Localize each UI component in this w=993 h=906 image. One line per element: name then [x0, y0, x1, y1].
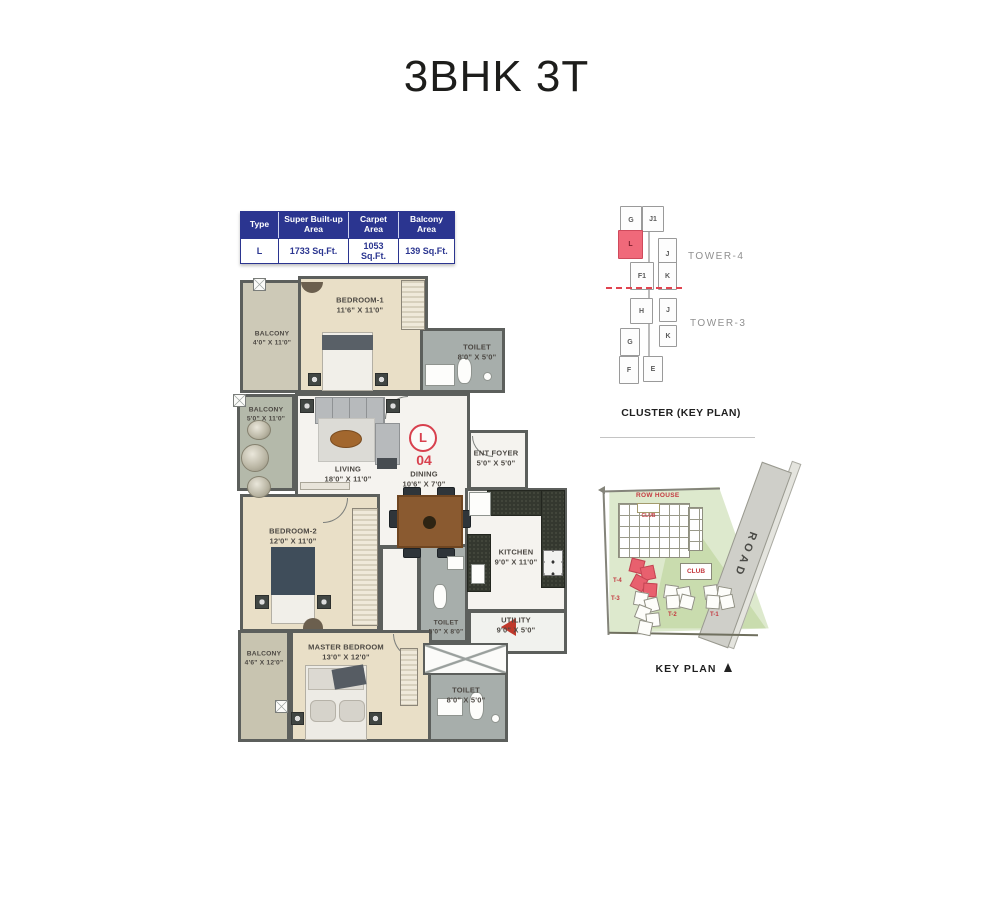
shower-drain [491, 714, 500, 723]
t1-label: T-1 [710, 612, 719, 618]
val-super-builtup: 1733 Sq.Ft. [279, 239, 349, 263]
col-type: Type [241, 212, 279, 238]
ottoman [377, 458, 397, 469]
tower-3-block [637, 620, 654, 637]
window-x-icon [233, 394, 246, 407]
row-house-grid-right [688, 507, 703, 551]
window-x-icon [275, 700, 288, 713]
cluster-unit-f1: F1 [630, 262, 654, 290]
cluster-unit-j1: J1 [642, 206, 664, 232]
label-balcony-mid: BALCONY 5'0" X 11'0" [247, 406, 285, 423]
cluster-caption: CLUSTER (KEY PLAN) [616, 407, 746, 419]
tower-3-label: TOWER-3 [690, 318, 746, 329]
kitchen-sink [471, 564, 485, 584]
tower-1-block [719, 594, 736, 611]
club-small-box: CLUB [637, 503, 660, 513]
col-carpet: Carpet Area [349, 212, 399, 238]
t2-label: T-2 [668, 612, 677, 618]
bed-cushion [339, 700, 365, 722]
unit-letter-badge: L [409, 424, 437, 452]
wardrobe-bedroom-2 [352, 508, 378, 626]
north-arrow-icon [724, 663, 732, 672]
label-utility: UTILITY 9'0" X 5'0" [497, 615, 536, 635]
unit-number: 04 [416, 452, 432, 468]
road-label: ROAD [731, 530, 759, 580]
wardrobe-master [400, 648, 418, 706]
area-table-header: Type Super Built-up Area Carpet Area Bal… [241, 212, 454, 238]
plant-pot [247, 476, 271, 498]
club-box: CLUB [680, 563, 712, 580]
plant-pot [241, 444, 269, 472]
area-table: Type Super Built-up Area Carpet Area Bal… [240, 211, 455, 264]
cluster-unit-h: H [630, 298, 653, 324]
wc [457, 358, 472, 384]
label-kitchen: KITCHEN 9'0" X 11'0" [495, 547, 538, 567]
shower-drain [483, 372, 492, 381]
bedside-table [369, 712, 382, 725]
bed-pillow-band [322, 335, 373, 350]
label-bedroom-2: BEDROOM-2 12'0" X 11'0" [269, 526, 317, 546]
club-small-label: CLUB [642, 513, 656, 519]
label-dining: DINING 10'6" X 7'0" [402, 469, 445, 489]
room-balcony-bottom [238, 630, 290, 742]
label-balcony-top: BALCONY 4'0" X 11'0" [253, 330, 291, 347]
tower-divider-line [606, 287, 682, 289]
page: 3BHK 3T Type Super Built-up Area Carpet … [0, 0, 993, 906]
shaft-duct [423, 643, 508, 675]
cluster-unit-g-bottom: G [620, 328, 640, 356]
club-label: CLUB [687, 568, 705, 575]
wc [433, 584, 447, 609]
val-carpet: 1053 Sq.Ft. [349, 239, 399, 263]
label-balcony-bottom: BALCONY 4'6" X 12'0" [245, 650, 284, 667]
area-table-row: L 1733 Sq.Ft. 1053 Sq.Ft. 139 Sq.Ft. [241, 238, 454, 263]
label-ent-foyer: ENT FOYER 5'0" X 5'0" [474, 448, 519, 468]
bedside-table [375, 373, 388, 386]
row-house-label: ROW HOUSE [636, 492, 680, 499]
key-plan-caption: KEY PLAN [636, 663, 736, 675]
washbasin [425, 364, 455, 386]
label-toilet-bottom: TOILET 8'0" X 5'0" [447, 685, 486, 705]
t3-label: T-3 [611, 596, 620, 602]
label-master-bedroom: MASTER BEDROOM 13'0" X 12'0" [308, 642, 384, 662]
hob [543, 550, 563, 576]
table-centerpiece [423, 516, 436, 529]
t4-label: T-4 [613, 578, 622, 584]
coffee-table [330, 430, 362, 448]
cluster-spine [648, 213, 650, 371]
label-living: LIVING 18'0" X 11'0" [324, 464, 371, 484]
dining-chair [403, 548, 421, 558]
bed-blanket [271, 547, 315, 595]
washbasin [447, 556, 464, 570]
passage [380, 546, 420, 634]
bedside-table [317, 595, 331, 609]
cluster-key-plan: G J1 L J F1 K H J G K F E TOWER-4 TOWER-… [600, 195, 800, 430]
bedside-table [291, 712, 304, 725]
val-balcony: 139 Sq.Ft. [399, 239, 454, 263]
window-x-icon [253, 278, 266, 291]
label-bedroom-1: BEDROOM-1 11'6" X 11'0" [336, 295, 384, 315]
col-balcony: Balcony Area [399, 212, 454, 238]
side-table [300, 399, 314, 413]
wardrobe-bedroom-1 [401, 280, 425, 330]
key-plan: ROAD ROW HOUSE CLUB CLUB T-4 [600, 437, 800, 692]
label-toilet-top: TOILET 8'0" X 5'0" [458, 342, 497, 362]
bedside-table [308, 373, 321, 386]
cluster-unit-j-t3: J [659, 298, 677, 322]
tower-4-label: TOWER-4 [688, 251, 744, 262]
floor-plan: L 04 BALCONY 4'0" X 11'0" BEDROOM-1 11'6… [225, 268, 570, 746]
cluster-unit-e: E [643, 356, 663, 382]
fridge [469, 492, 491, 516]
cluster-unit-k-t4: K [658, 262, 677, 290]
page-title: 3BHK 3T [0, 52, 993, 102]
col-super-builtup: Super Built-up Area [279, 212, 349, 238]
bed-cushion [310, 700, 336, 722]
label-toilet-mid: TOILET 5'0" X 8'0" [429, 619, 464, 636]
val-type: L [241, 239, 279, 263]
bedside-table [255, 595, 269, 609]
side-table [386, 399, 400, 413]
cluster-unit-f: F [619, 356, 639, 384]
site-left-wall [602, 489, 609, 635]
cluster-unit-k-t3: K [659, 325, 677, 347]
cluster-unit-l-highlighted: L [618, 230, 643, 259]
section-divider [600, 437, 755, 438]
